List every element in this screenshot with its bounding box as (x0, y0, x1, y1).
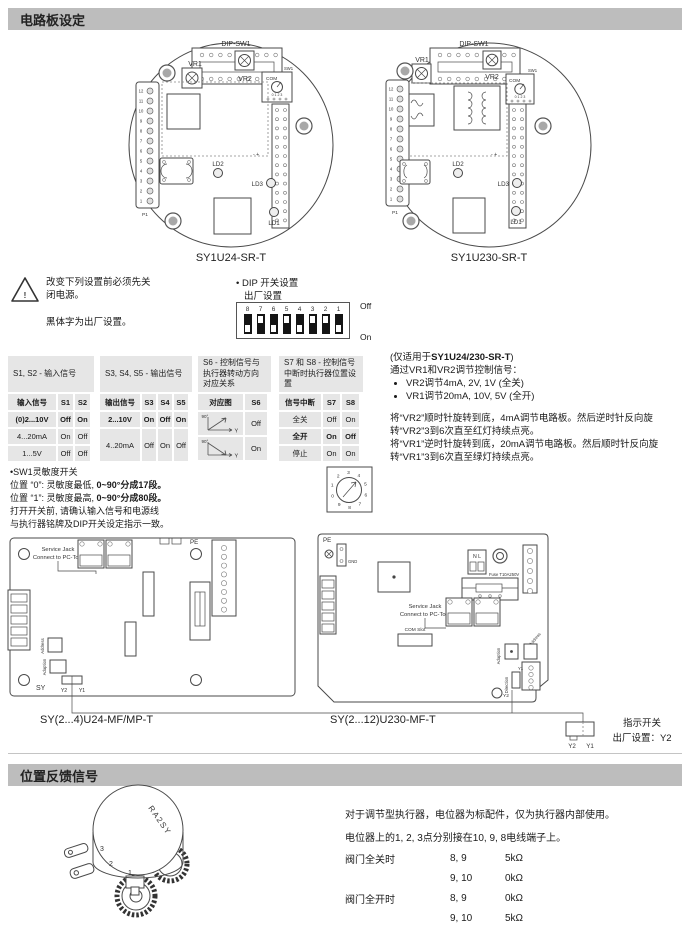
table-cell: 全开 (279, 429, 321, 444)
valve-state-label: 阀门全关时 (345, 851, 450, 866)
label-direction: Direction (504, 676, 509, 693)
ld3-led (267, 179, 276, 188)
table-header-cell: S1 (58, 394, 73, 410)
table-cell: 全关 (279, 412, 321, 427)
table-header-cell: S8 (342, 394, 359, 410)
table-header-cell: S2 (75, 394, 90, 410)
terminal-number: 10 (389, 107, 394, 112)
feedback-line2: 电位器上的1, 2, 3点分别接在10, 9, 8电线端子上。 (345, 829, 566, 844)
vr1-label: VR1 (188, 61, 202, 68)
label-service-jack: Service Jack (42, 547, 75, 553)
table-header-cell: S3 (142, 394, 156, 410)
warning-icon: ! (10, 276, 40, 304)
rotary-digit: 2 (337, 474, 340, 480)
table-header-cell: S7 (323, 394, 340, 410)
transformer-large (454, 86, 500, 130)
table-cell: On (323, 429, 340, 444)
dip-switch-7: 7 (256, 306, 265, 334)
table-cell: On (58, 429, 73, 444)
circuit-board-diagram-sy1u24: DIP-SW1 VR1 VR2 SW1 COM 0 1 2 3 - + 1211… (122, 36, 340, 254)
table-cell: On (323, 446, 340, 461)
resistance-value: 5kΩ (505, 853, 565, 864)
label-connect-pc-tool: Connect to PC-Tool (400, 612, 450, 618)
label-adaption: Adaption (496, 647, 501, 664)
table-cell: On (75, 412, 90, 427)
settings-table-1: S1, S2 - 输入信号输入信号S1S2(0)2...10VOffOn4...… (8, 356, 94, 463)
factory-bold-note: 黑体字为出厂设置。 (46, 314, 216, 328)
direction-graph-falling: 90°Y (198, 437, 243, 460)
dip-switch-8: 8 (243, 306, 252, 334)
dip-switch-4: 4 (295, 306, 304, 334)
board-caption-sy24: SY(2...4)U24-MF/MP-T (40, 714, 153, 726)
ld1-label: LD1 (268, 220, 280, 227)
dip-switch-2: 2 (321, 306, 330, 334)
resistance-row: 阀门全开时8, 90kΩ (345, 888, 565, 908)
dip-switch-number: 1 (337, 306, 341, 313)
table-title: S3, S4, S5 - 输出信号 (100, 356, 192, 392)
section-title: 位置反馈信号 (20, 766, 98, 785)
table-header-cell: 信号中断 (279, 394, 321, 410)
rotary-sensitivity-switch-icon: 0123456789 (326, 466, 374, 514)
resistance-row: 阀门全关时8, 95kΩ (345, 848, 565, 868)
ld2-led (214, 169, 223, 178)
dip-switch-handle (335, 314, 343, 334)
warning-text: 改变下列设置前必须先关 闭电源。 (46, 276, 216, 302)
sw1-note: •SW1灵敏度开关 位置 “0”: 灵敏度最低, 0~90°分成17段。 位置 … (10, 466, 280, 531)
potentiometer-illustration: RA2SY 3 2 1 (58, 788, 218, 924)
dip-switch-handle (309, 314, 317, 334)
table-cell: Off (75, 446, 90, 461)
transformer-small (406, 94, 434, 126)
ld1-label: LD1 (510, 219, 522, 226)
table-header-cell: S6 (245, 394, 267, 410)
settings-table-2: S3, S4, S5 - 输出信号输出信号S3S4S52...10VOnOffO… (100, 356, 192, 463)
dip-switch-5: 5 (282, 306, 291, 334)
label-pe: PE (190, 539, 198, 546)
com-label: COM (509, 78, 520, 84)
ld3-label: LD3 (498, 181, 510, 188)
ld3-led (513, 179, 522, 188)
resistance-table: 阀门全关时8, 95kΩ9, 100kΩ阀门全开时8, 90kΩ9, 105kΩ (345, 848, 565, 928)
terminal-number: 10 (139, 109, 144, 114)
table-cell: 1...5V (8, 446, 56, 461)
board-sy212-u230: PE GND N L Fuse T10A250V Service Jack Co… (318, 534, 548, 702)
table-cell: (0)2...10V (8, 412, 56, 427)
lower-boards-diagram: Service Jack Connect to PC-Tool PE Addre… (0, 530, 690, 762)
vr2-label: VR2 (485, 74, 499, 81)
table-title: S7 和 S8 - 控制信号中断时执行器位置设置 (279, 356, 363, 392)
resistance-value: 0kΩ (505, 893, 565, 904)
table-cell: Off (158, 412, 172, 427)
svg-text:Y: Y (234, 454, 238, 460)
terminal-number: 12 (389, 87, 394, 92)
label-pe: PE (323, 537, 331, 544)
polarity-label: - + (491, 152, 497, 158)
svg-text:Y: Y (234, 429, 238, 435)
table-cell: Off (58, 446, 73, 461)
rotary-digit: 3 (347, 470, 350, 476)
dip-switch-6: 6 (269, 306, 278, 334)
vr-note-line1: 通过VR1和VR2调节控制信号： (390, 364, 690, 377)
ic-chip (167, 94, 200, 129)
dip-switch-handle (270, 314, 278, 334)
table-cell: On (158, 429, 172, 461)
table-cell: On (174, 412, 188, 427)
table-cell: 4..20mA (100, 429, 140, 461)
rotary-digit: 9 (338, 502, 341, 508)
feedback-line1: 对于调节型执行器，电位器为标配件，仅为执行器内部使用。 (345, 806, 615, 821)
table-cell: On (245, 437, 267, 460)
label-y1: Y1 (518, 666, 524, 671)
spade-terminal (63, 842, 89, 858)
board-caption-sy1u24: SY1U24-SR-T (151, 252, 311, 264)
label-y1: Y1 (79, 688, 85, 694)
component-block (453, 198, 485, 233)
rotary-digit: 7 (358, 501, 361, 507)
table-header-cell: 输入信号 (8, 394, 56, 410)
board-sy24-u24: Service Jack Connect to PC-Tool PE Addre… (8, 538, 295, 696)
vr1-paragraph: 将“VR1”逆时针旋转到底，20mA调节电路板。然后顺时针反向旋转“VR1”3到… (390, 438, 690, 464)
dip-switch-handle (322, 314, 330, 334)
table-cell: Off (342, 429, 359, 444)
label-sy: SY (36, 685, 46, 692)
indicator-y1-label: Y1 (586, 743, 594, 750)
table-cell: Off (245, 412, 267, 435)
vr2-paragraph: 将“VR2”顺时针旋转到底，4mA调节电路板。然后逆时针反向旋转“VR2”3到6… (390, 412, 690, 438)
dip-switch-number: 3 (311, 306, 315, 313)
dip-switch-handle (296, 314, 304, 334)
label-address: Address (40, 638, 45, 653)
pot-pin-3: 3 (100, 846, 104, 853)
spade-terminal (69, 863, 95, 880)
table-cell: Off (75, 429, 90, 444)
terminal-number: 11 (139, 99, 144, 104)
label-gnd: GND (348, 559, 357, 564)
ld1-led (512, 207, 521, 216)
polarity-label: - + (253, 152, 259, 158)
board-caption-sy212: SY(2...12)U230-MF-T (330, 714, 436, 726)
ld3-label: LD3 (252, 181, 264, 188)
section-header-feedback: 位置反馈信号 (8, 764, 682, 786)
table-header-cell: S4 (158, 394, 172, 410)
indicator-y2-label: Y2 (568, 743, 576, 750)
indicator-switch-connector: Y2 Y1 (566, 722, 594, 750)
sw1-label: SW1 (528, 68, 538, 73)
dip-switch-number: 2 (324, 306, 328, 313)
rotary-digit: 1 (331, 483, 334, 489)
pot-pin-1: 1 (128, 870, 132, 877)
vr-adjust-note: (仅适用于SY1U24/230-SR-T) 通过VR1和VR2调节控制信号： V… (390, 351, 690, 464)
svg-text:!: ! (24, 291, 27, 300)
rotary-digit: 8 (348, 505, 351, 511)
rotary-digit: 4 (357, 473, 360, 479)
section-header-circuit-board: 电路板设定 (8, 8, 682, 30)
circuit-board-diagram-sy1u230: DIP-SW1 VR1 VR2 SW1 COM 0 1 2 3 - + 1211… (380, 36, 598, 254)
dip-off-label: Off (360, 301, 371, 311)
rotary-digit: 0 (331, 494, 334, 500)
table-cell: Off (142, 429, 156, 461)
pot-pin-2: 2 (109, 861, 113, 868)
label-nl: N L (473, 554, 481, 560)
dip-switch-3: 3 (308, 306, 317, 334)
table-header-cell: 对应图 (198, 394, 243, 410)
rotary-digits: 0 1 2 3 (272, 93, 283, 97)
direction-graph-rising: 90°Y (198, 412, 243, 435)
rotary-digit: 6 (364, 492, 367, 498)
p1-label: P1 (392, 210, 398, 216)
table-cell: On (342, 412, 359, 427)
terminal-pair: 8, 9 (450, 893, 505, 904)
terminal-pair: 9, 10 (450, 873, 505, 884)
terminal-number: 12 (139, 89, 144, 94)
dip-switch-block: 87654321 (236, 302, 350, 339)
vr2-label: VR2 (238, 76, 252, 83)
ld2-label: LD2 (452, 161, 464, 168)
terminal-pair: 9, 10 (450, 913, 505, 924)
com-label: COM (266, 76, 277, 82)
table-title: S6 - 控制信号与执行器转动方向对应关系 (198, 356, 271, 392)
table-cell: Off (174, 429, 188, 461)
table-title: S1, S2 - 输入信号 (8, 356, 94, 392)
vr1-label: VR1 (415, 57, 429, 64)
vr-note-bullets: VR2调节4mA, 2V, 1V (全关) VR1调节20mA, 10V, 5V… (390, 377, 690, 403)
label-y2: Y2 (61, 688, 67, 694)
dip-on-label: On (360, 332, 371, 342)
sw1-label: SW1 (284, 66, 294, 71)
table-cell: 停止 (279, 446, 321, 461)
terminal-number: 11 (389, 97, 394, 102)
table-header-cell: S5 (174, 394, 188, 410)
ld2-led (454, 169, 463, 178)
vr2-bullet: VR2调节4mA, 2V, 1V (全关) (406, 377, 690, 390)
section-title: 电路板设定 (20, 10, 85, 29)
table-cell: 2...10V (100, 412, 140, 427)
settings-table-3: S6 - 控制信号与执行器转动方向对应关系对应图S690°YOff90°YOn (198, 356, 271, 462)
valve-state-label: 阀门全开时 (345, 891, 450, 906)
settings-table-4: S7 和 S8 - 控制信号中断时执行器位置设置信号中断S7S8全关OffOn全… (279, 356, 363, 463)
dip-sw1-label: DIP-SW1 (459, 41, 488, 48)
resistance-row: 9, 105kΩ (345, 908, 565, 928)
table-cell: 4...20mA (8, 429, 56, 444)
svg-text:90°: 90° (201, 439, 208, 444)
label-connect-pc-tool: Connect to PC-Tool (33, 555, 83, 561)
label-service-jack: Service Jack (409, 604, 442, 610)
table-cell: Off (323, 412, 340, 427)
rotary-digits: 0 1 2 3 (515, 95, 526, 99)
ld1-led (270, 208, 279, 217)
dip-setting-title: • DIP 开关设置 (236, 275, 298, 289)
dip-switch-number: 5 (285, 306, 289, 313)
table-header-cell: 输出信号 (100, 394, 140, 410)
dip-sw1-label: DIP-SW1 (221, 41, 250, 48)
dip-switch-handle (257, 314, 265, 334)
dip-switch-handle (244, 314, 252, 334)
resistance-value: 0kΩ (505, 873, 565, 884)
section-divider (8, 753, 682, 754)
label-adaption: Adaption (42, 658, 47, 675)
table-cell: On (142, 412, 156, 427)
table-cell: On (342, 446, 359, 461)
resistance-row: 9, 100kΩ (345, 868, 565, 888)
ld2-label: LD2 (212, 161, 224, 168)
vr-note-title: (仅适用于SY1U24/230-SR-T) (390, 351, 690, 364)
table-cell: Off (58, 412, 73, 427)
rotary-digit: 5 (364, 482, 367, 488)
dip-switch-number: 8 (246, 306, 250, 313)
indicator-switch-note: 指示开关 出厂设置：Y2 (596, 716, 688, 746)
label-y2: Y2 (503, 693, 509, 699)
p1-label: P1 (142, 212, 148, 218)
component-block (214, 198, 251, 234)
dip-switch-number: 4 (298, 306, 302, 313)
label-fuse: Fuse T10A250V (489, 572, 519, 577)
dip-switch-number: 7 (259, 306, 263, 313)
terminal-pair: 8, 9 (450, 853, 505, 864)
svg-text:90°: 90° (201, 414, 208, 419)
dip-setting-subtitle: 出厂设置 (244, 288, 282, 302)
resistance-value: 5kΩ (505, 913, 565, 924)
label-com-slot: COM Slot (405, 627, 426, 633)
dip-switch-number: 6 (272, 306, 276, 313)
dip-switch-1: 1 (334, 306, 343, 334)
vr1-bullet: VR1调节20mA, 10V, 5V (全开) (406, 390, 690, 403)
board-caption-sy1u230: SY1U230-SR-T (409, 252, 569, 264)
dip-switch-handle (283, 314, 291, 334)
